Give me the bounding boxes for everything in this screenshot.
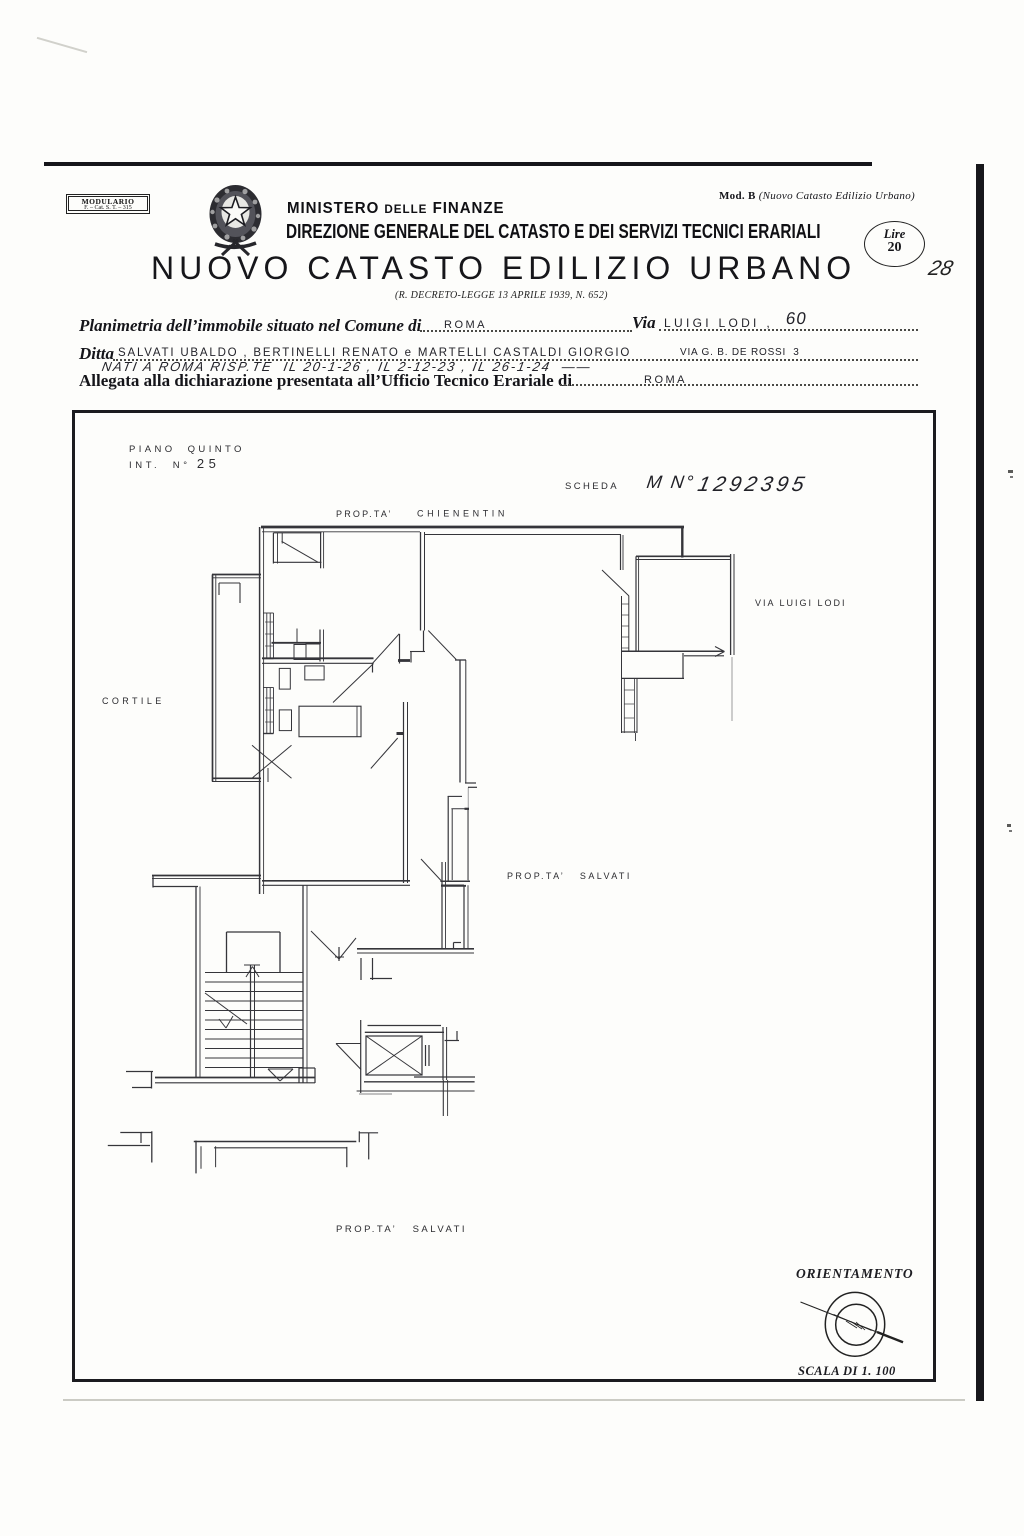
svg-text:ORIENTAMENTO: ORIENTAMENTO — [796, 1266, 913, 1281]
svg-text:CHIENENTIN: CHIENENTIN — [417, 509, 508, 519]
svg-text:PIANO QUINTO: PIANO QUINTO — [129, 444, 245, 455]
svg-text:SCHEDA: SCHEDA — [565, 481, 619, 492]
svg-text:CORTILE: CORTILE — [102, 696, 165, 706]
svg-text:PROP.TA’ SALVATI: PROP.TA’ SALVATI — [336, 1224, 467, 1235]
svg-text:PROP.TA’: PROP.TA’ — [336, 509, 393, 519]
svg-text:PROP.TA’ SALVATI: PROP.TA’ SALVATI — [507, 871, 632, 881]
svg-text:M N°: M N° — [645, 472, 696, 492]
svg-text:VIA LUIGI LODI: VIA LUIGI LODI — [755, 598, 847, 608]
svg-text:1292395: 1292395 — [696, 473, 811, 496]
svg-text:SCALA DI 1. 100: SCALA DI 1. 100 — [798, 1364, 896, 1378]
svg-text:INT. N° 25: INT. N° 25 — [129, 456, 220, 471]
